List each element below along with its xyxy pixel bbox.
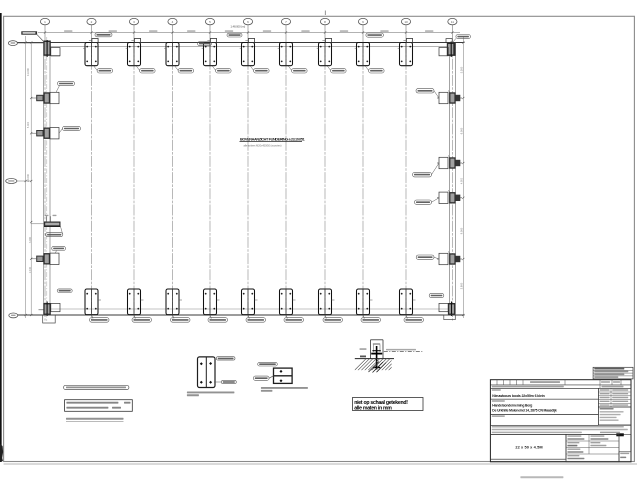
svg-text:alle maten in mm: alle maten in mm: [354, 406, 392, 412]
svg-text:3.000: 3.000: [29, 236, 32, 243]
svg-text:De Urkhille Moleneind 14, 2875: De Urkhille Moleneind 14, 2875 CN Maasdi…: [492, 408, 557, 412]
svg-text:5.400: 5.400: [27, 121, 30, 128]
svg-text:BOVENAANZICHT FUNDERING a 23.1: BOVENAANZICHT FUNDERING a 23.10.051: [240, 138, 305, 142]
svg-text:6.000: 6.000: [459, 127, 463, 134]
svg-text:Nieuwbouw loods 22x50m 6 klein: Nieuwbouw loods 22x50m 6 klein: [492, 394, 544, 398]
svg-text:10: 10: [404, 20, 408, 24]
svg-text:11.000: 11.000: [26, 68, 30, 76]
svg-text:Handelsonderneming Berg: Handelsonderneming Berg: [492, 403, 532, 407]
svg-text:11: 11: [451, 20, 454, 24]
svg-text:22.000: 22.000: [26, 173, 30, 181]
svg-text:3.600: 3.600: [459, 282, 463, 289]
svg-text:4.800: 4.800: [460, 177, 463, 184]
svg-text:1.48.000 (m): 1.48.000 (m): [230, 24, 245, 28]
svg-text:9.000: 9.000: [459, 227, 463, 234]
svg-text:22 x 50 x 4.5M: 22 x 50 x 4.5M: [515, 444, 542, 449]
svg-text:5.500: 5.500: [459, 66, 463, 73]
svg-text:alle ankers M20x450/50 (voorzi: alle ankers M20x450/50 (voorzien): [244, 143, 282, 147]
svg-text:2.400: 2.400: [29, 266, 32, 273]
